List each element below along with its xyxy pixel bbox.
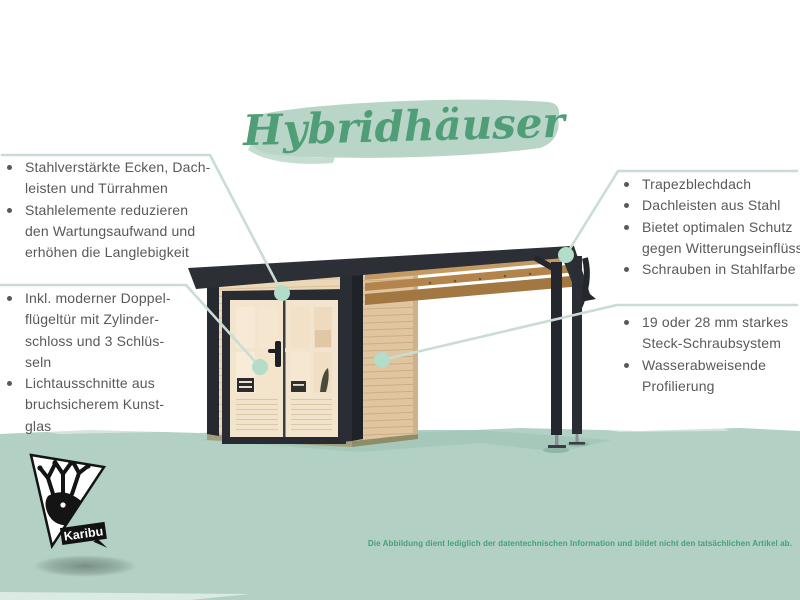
callout-item: Bietet optimalen Schutzgegen Witterungse… [624, 217, 800, 260]
callout-list-right-top: TrapezblechdachDachleisten aus StahlBiet… [624, 174, 800, 280]
bullet-dot [624, 267, 629, 272]
door-panel [291, 398, 332, 432]
callout-item: Schrauben in Stahlfarbe [624, 259, 800, 280]
callout-dot [374, 352, 390, 368]
infographic-page: Karibu Hybridhäuser Stahlverstärkte Ecke… [0, 0, 800, 600]
callout-text: 19 oder 28 mm starkesSteck-Schraubsystem [642, 312, 788, 355]
callout-item: Lichtausschnitte ausbruchsicherem Kunst-… [7, 373, 237, 437]
door-panel [236, 398, 278, 432]
garden-shed-illustration [188, 246, 596, 448]
callout-text: Schrauben in Stahlfarbe [642, 259, 796, 280]
bullet-dot [7, 208, 12, 213]
callout-text: Inkl. moderner Doppel-flügeltür mit Zyli… [25, 288, 171, 373]
corner-trim-right-front [340, 268, 352, 442]
callout-item: Inkl. moderner Doppel-flügeltür mit Zyli… [7, 288, 237, 373]
callout-dot [558, 247, 574, 263]
double-door [230, 300, 338, 437]
page-title: Hybridhäuser [242, 92, 560, 162]
callout-text: Stahlverstärkte Ecken, Dach-leisten und … [25, 157, 211, 200]
foot-plate [569, 442, 585, 445]
callout-text: Dachleisten aus Stahl [642, 195, 781, 216]
logo-shadow [33, 555, 137, 577]
callout-item: Trapezblechdach [624, 174, 800, 195]
callout-item: Dachleisten aus Stahl [624, 195, 800, 216]
post-rear [572, 256, 582, 434]
callout-list-right-bottom: 19 oder 28 mm starkesSteck-Schraubsystem… [624, 312, 800, 397]
corner-trim-right-side [352, 267, 363, 441]
bullet-dot [624, 363, 629, 368]
callout-text: Lichtausschnitte ausbruchsicherem Kunst-… [25, 373, 164, 437]
post-front [551, 262, 562, 435]
bullet-dot [7, 381, 12, 386]
callout-list-left-bottom: Inkl. moderner Doppel-flügeltür mit Zyli… [7, 288, 237, 437]
door-glass [259, 307, 278, 348]
callout-dot [252, 359, 268, 375]
bullet-dot [624, 320, 629, 325]
ground-shape [0, 428, 800, 600]
callout-dot [274, 285, 290, 301]
callout-list-left-top: Stahlverstärkte Ecken, Dach-leisten und … [7, 157, 237, 263]
callout-item: 19 oder 28 mm starkesSteck-Schraubsystem [624, 312, 800, 355]
disclaimer-text: Die Abbildung dient lediglich der datent… [322, 539, 792, 548]
callout-text: Trapezblechdach [642, 174, 751, 195]
callout-item: WasserabweisendeProfilierung [624, 355, 800, 398]
foot-plate [548, 445, 566, 448]
bullet-dot [7, 165, 12, 170]
callout-text: Bietet optimalen Schutzgegen Witterungse… [642, 217, 800, 260]
callout-text: Stahlelemente reduzierenden Wartungsaufw… [25, 200, 195, 264]
callout-item: Stahlelemente reduzierenden Wartungsaufw… [7, 200, 237, 264]
adjustable-foot [555, 435, 559, 445]
bullet-dot [624, 203, 629, 208]
callout-text: WasserabweisendeProfilierung [642, 355, 766, 398]
bullet-dot [624, 182, 629, 187]
bullet-dot [7, 296, 12, 301]
callout-item: Stahlverstärkte Ecken, Dach-leisten und … [7, 157, 237, 200]
adjustable-foot [576, 434, 579, 442]
bullet-dot [624, 225, 629, 230]
door-glass [291, 307, 310, 348]
